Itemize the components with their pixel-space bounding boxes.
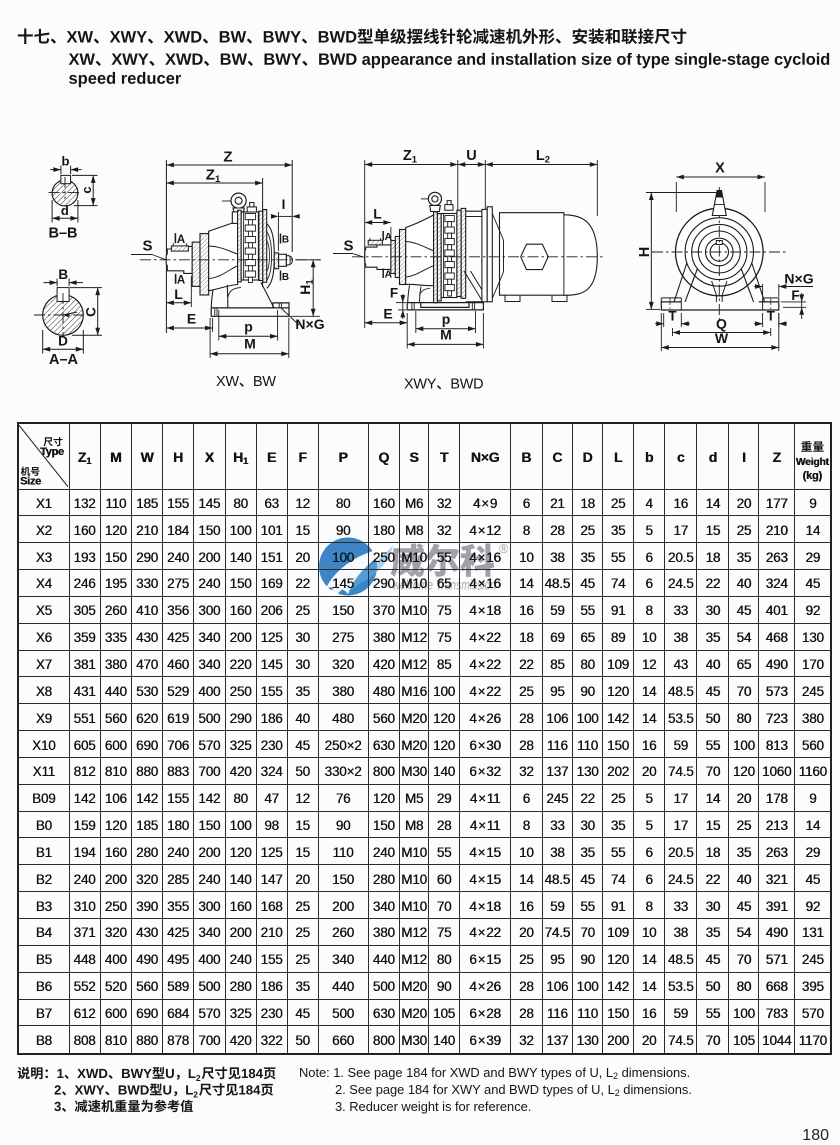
svg-text:W: W — [715, 330, 729, 346]
svg-text:U: U — [466, 148, 476, 164]
svg-text:B: B — [58, 267, 68, 282]
svg-text:A–A: A–A — [49, 352, 79, 368]
svg-text:M: M — [244, 336, 256, 352]
svg-text:Weight: Weight — [796, 457, 830, 468]
svg-text:p: p — [442, 311, 451, 327]
svg-text:I: I — [282, 197, 286, 212]
svg-text:D: D — [58, 333, 68, 348]
svg-text:Type: Type — [40, 446, 64, 458]
svg-text:X: X — [715, 161, 725, 177]
svg-text:2: 2 — [196, 1073, 201, 1083]
svg-text:Z1: Z1 — [403, 148, 418, 166]
svg-text:d: d — [61, 203, 69, 218]
svg-text:L: L — [373, 206, 382, 222]
svg-text:A: A — [385, 269, 393, 281]
svg-text:E: E — [383, 306, 392, 322]
svg-text:b: b — [62, 154, 70, 169]
svg-text:Size: Size — [20, 476, 41, 488]
svg-text:(kg): (kg) — [803, 470, 823, 482]
svg-text:H1: H1 — [297, 279, 316, 295]
svg-text:Z1: Z1 — [206, 167, 221, 186]
svg-text:B: B — [282, 235, 289, 246]
svg-text:L2: L2 — [536, 148, 550, 166]
svg-text:T: T — [668, 309, 677, 324]
svg-text:C: C — [84, 307, 99, 317]
svg-text:Z: Z — [223, 149, 232, 166]
svg-text:H: H — [637, 247, 653, 257]
svg-text:A: A — [385, 231, 393, 243]
svg-text:p: p — [244, 319, 253, 335]
svg-text:A: A — [177, 274, 185, 286]
svg-text:F: F — [390, 286, 398, 301]
svg-text:A: A — [177, 234, 185, 246]
svg-text:2: 2 — [193, 1090, 198, 1100]
svg-text:B: B — [282, 272, 289, 283]
svg-text:N×G: N×G — [295, 316, 324, 332]
svg-text:T: T — [767, 309, 776, 324]
svg-text:c: c — [79, 186, 94, 193]
svg-text:B–B: B–B — [48, 226, 77, 242]
svg-text:F: F — [791, 288, 799, 303]
svg-text:N×G: N×G — [784, 271, 813, 287]
svg-text:L: L — [174, 286, 183, 302]
svg-text:S: S — [343, 238, 353, 255]
svg-text:E: E — [187, 311, 196, 327]
svg-text:M: M — [440, 327, 452, 343]
svg-text:S: S — [142, 238, 152, 255]
